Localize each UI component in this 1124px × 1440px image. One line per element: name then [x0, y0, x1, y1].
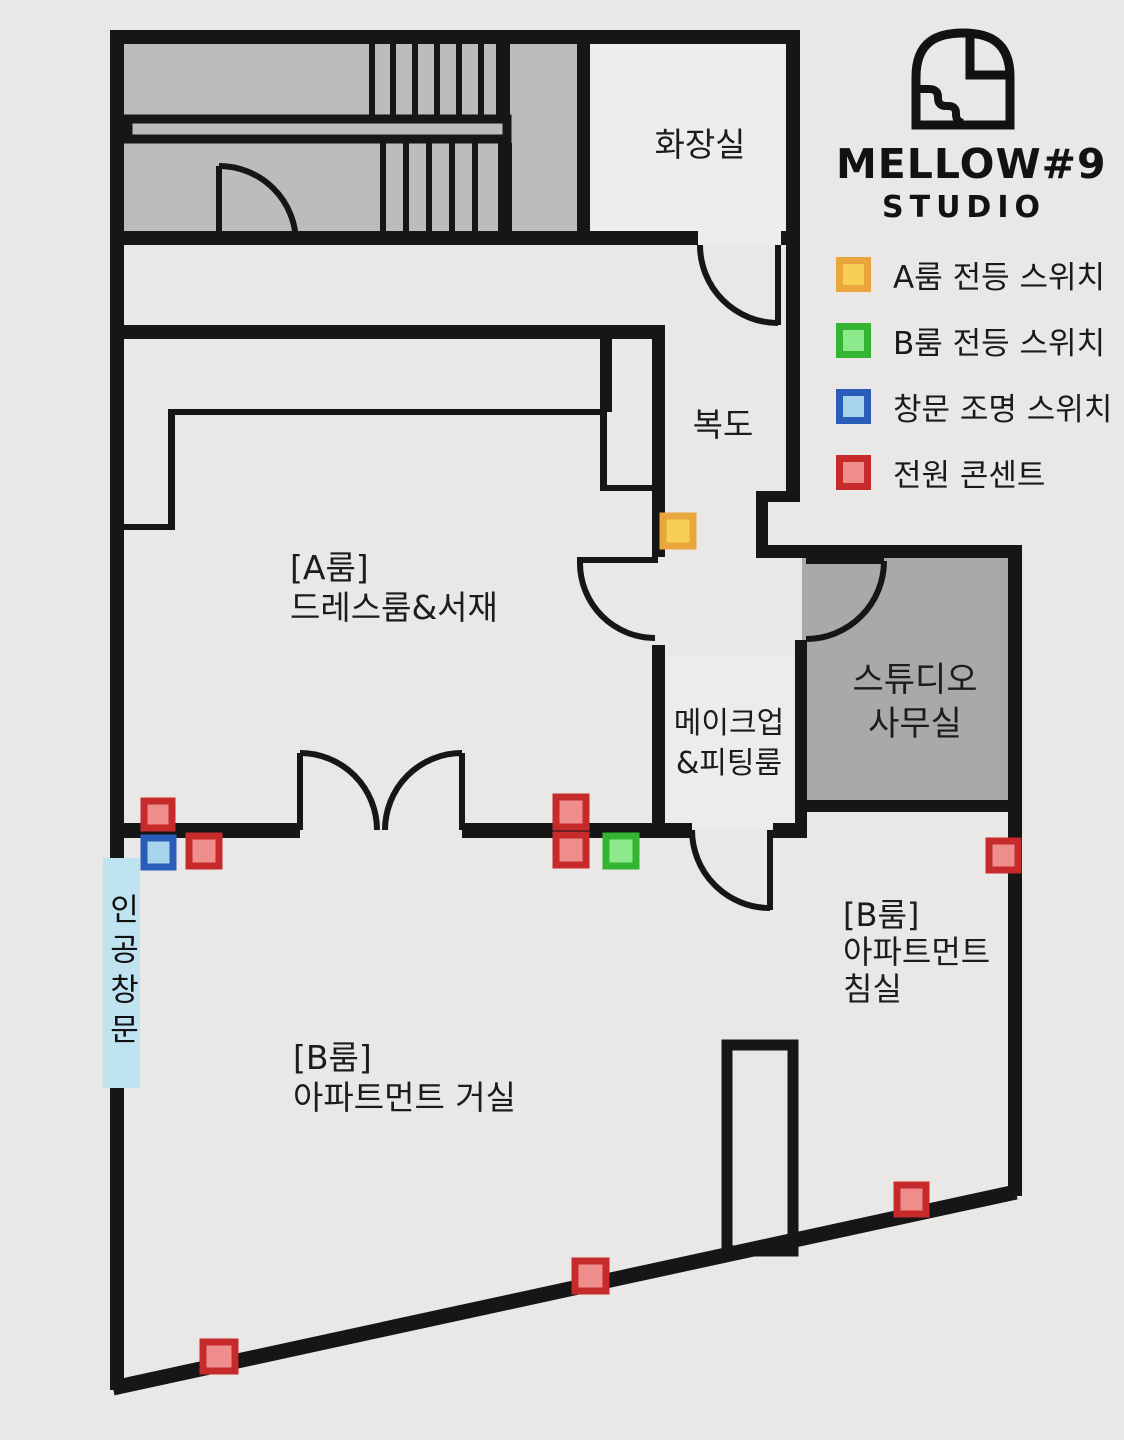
makeup-room-door [692, 830, 773, 910]
corridor-label: 복도 [623, 398, 823, 446]
window-switch-swatch-icon [836, 389, 871, 424]
power-outlet-swatch-icon [836, 455, 871, 490]
wall-aroom-stub [600, 329, 612, 412]
bathroom-label: 화장실 [600, 118, 800, 166]
legend-label: B룸 전등 스위치 [893, 318, 1105, 363]
a-room-label: [A룸] 드레스룸&서재 [290, 548, 498, 629]
window-switch-marker [144, 838, 173, 867]
makeup-room-label: 메이크업 &피팅룸 [653, 704, 805, 783]
wall-bottom-diagonal [113, 1192, 1016, 1388]
b-room-living-label: [B룸] 아파트먼트 거실 [293, 1038, 516, 1117]
legend-item-b-room-switch: B룸 전등 스위치 [836, 323, 1112, 358]
legend-label: 창문 조명 스위치 [893, 384, 1112, 429]
studio-brand: MELLOW#9 STUDIO [836, 140, 1092, 225]
wall-top [110, 30, 800, 44]
stair-landing-rail [128, 119, 507, 139]
wall-office-bottom [795, 800, 1022, 812]
outlet-marker [989, 841, 1018, 870]
b-room-switch-marker [606, 836, 636, 866]
legend-item-power-outlet: 전원 콘센트 [836, 455, 1112, 490]
office-label: 스튜디오 사무실 [827, 658, 1003, 746]
studio-logo-icon [908, 24, 1018, 130]
legend-item-a-room-switch: A룸 전등 스위치 [836, 257, 1112, 292]
outlet-marker [144, 801, 172, 828]
b-room-switch-swatch-icon [836, 323, 871, 358]
b-room-bedroom-label: [B룸] 아파트먼트 침실 [843, 897, 990, 1008]
outlet-marker [556, 835, 586, 865]
outlet-marker [556, 797, 586, 827]
brand-subtitle: STUDIO [836, 190, 1092, 225]
legend: A룸 전등 스위치 B룸 전등 스위치 창문 조명 스위치 전원 콘센트 [836, 257, 1112, 521]
legend-label: 전원 콘센트 [893, 450, 1045, 495]
outlet-marker [897, 1185, 926, 1214]
a-room-double-door [297, 753, 465, 830]
outlet-marker [575, 1261, 606, 1291]
a-room-switch-swatch-icon [836, 257, 871, 292]
outlet-marker [203, 1342, 235, 1371]
a-room-switch-marker [663, 516, 693, 546]
brand-name: MELLOW#9 [836, 140, 1092, 188]
floorplan-page: 인공창문 화장실 복도 [A룸] 드레스룸&서재 메이크업 &피팅룸 스튜디오 … [0, 0, 1124, 1440]
legend-label: A룸 전등 스위치 [893, 252, 1105, 297]
b-room-partition-wall [727, 1045, 793, 1251]
artificial-window-strip: 인공창문 [103, 858, 140, 1088]
wall-stair-bath-divider [577, 30, 590, 245]
wall-stair-bottom [110, 231, 698, 245]
wall-aroom-top [110, 325, 665, 339]
wall-bath-bottom-right [781, 231, 800, 245]
wall-bottom-3 [773, 823, 807, 838]
power-outlet-markers [144, 797, 1018, 1371]
a-room-door [577, 557, 658, 638]
legend-item-window-switch: 창문 조명 스위치 [836, 389, 1112, 424]
bathroom-door [700, 245, 781, 325]
wall-office-left-a [795, 545, 807, 558]
outlet-marker [189, 836, 219, 866]
aroom-inner-outline [124, 409, 657, 530]
